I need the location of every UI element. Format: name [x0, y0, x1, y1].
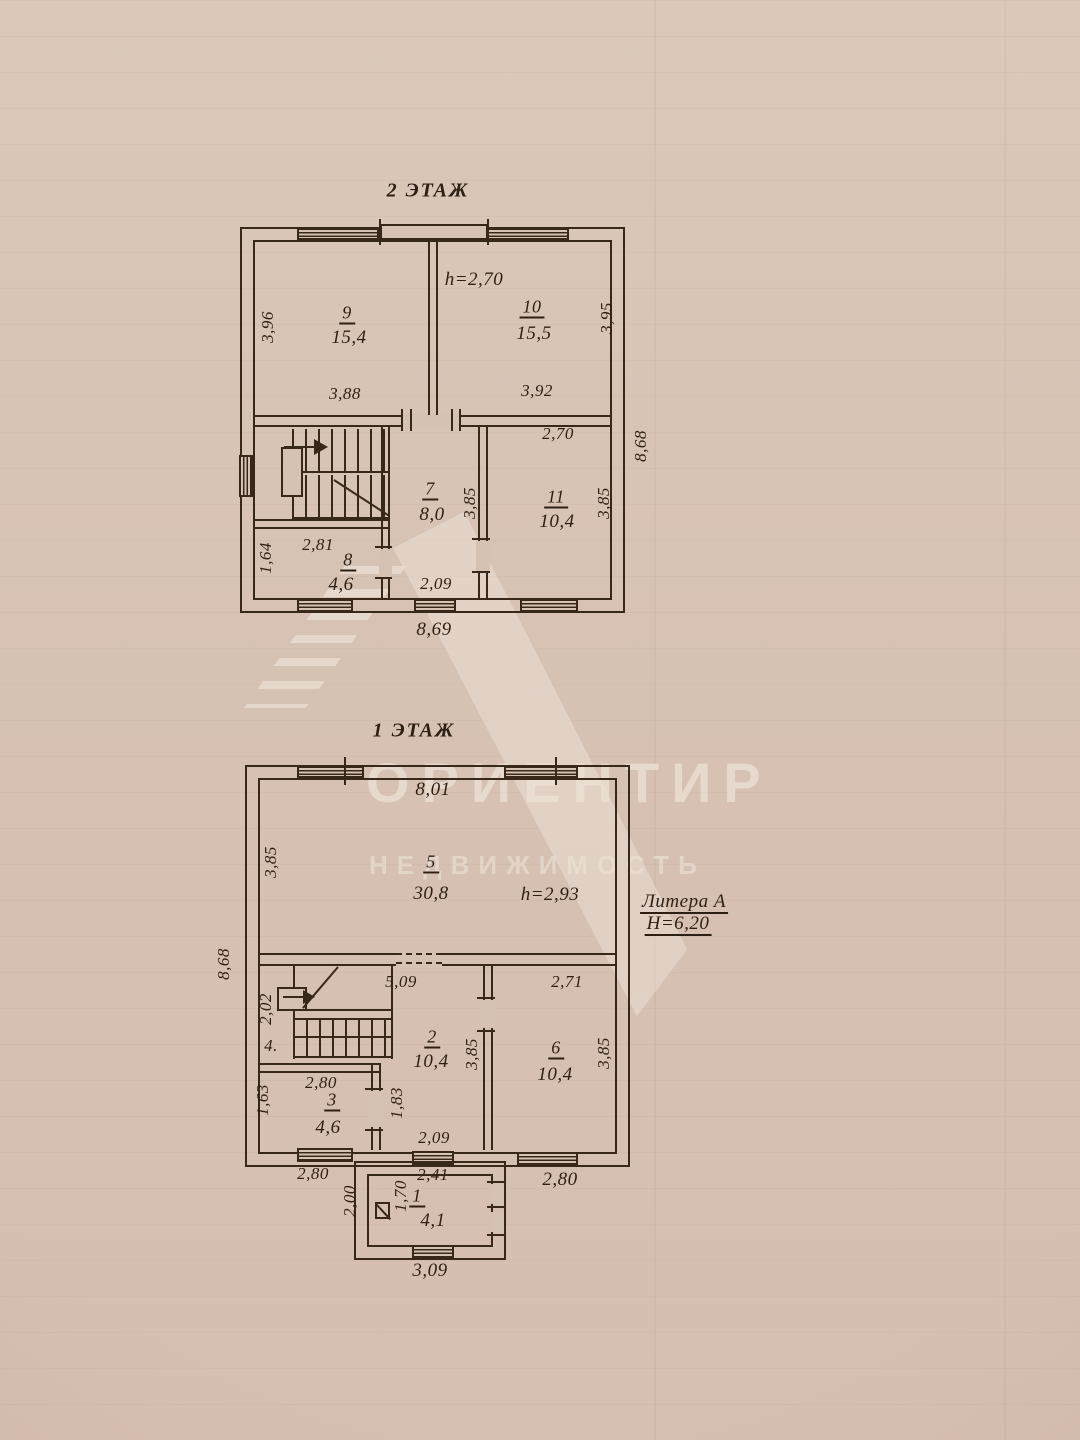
interior-wall — [428, 242, 438, 415]
ceiling-height-label: h=2,70 — [445, 269, 504, 291]
litera-label: Литера А — [640, 891, 728, 913]
door-jamb-tick — [365, 1129, 383, 1131]
dimension-label: 2,80 — [542, 1169, 577, 1191]
interior-wall — [483, 964, 493, 1150]
door-jamb-tick — [459, 409, 461, 431]
room-number: 1 — [409, 1186, 425, 1207]
room-number: 6 — [548, 1038, 564, 1059]
dimension-label: 3,96 — [258, 311, 278, 343]
room9-number: 9 — [339, 303, 355, 325]
dimension-label: 1,64 — [256, 542, 276, 574]
door-jamb-tick — [477, 997, 495, 999]
room6-number: 6 — [548, 1038, 564, 1060]
room6-area: 10,4 — [537, 1064, 572, 1086]
room10-number: 10 — [520, 297, 545, 319]
dashed-opening-line — [396, 962, 442, 964]
window — [297, 766, 364, 778]
window — [239, 455, 253, 497]
room2-number: 2 — [424, 1027, 440, 1049]
dimension-label: 8,68 — [214, 948, 234, 980]
window — [487, 228, 569, 240]
floor2-title: 2 ЭТАЖ — [387, 180, 470, 203]
room-number: 7 — [422, 479, 438, 500]
door-jamb-tick — [375, 577, 392, 579]
dimension-tick — [555, 757, 557, 785]
stair-treads — [292, 429, 388, 473]
door-jamb-tick — [487, 1181, 506, 1183]
dimension-label: 3,95 — [597, 302, 617, 334]
door-opening — [369, 1091, 383, 1127]
room1-number: 1 — [409, 1186, 425, 1208]
dimension-tick — [379, 219, 381, 245]
dimension-label: 2,09 — [418, 1128, 450, 1148]
room3-area: 4,6 — [315, 1117, 340, 1139]
dimension-tick — [487, 219, 489, 245]
room8-number: 8 — [340, 550, 356, 572]
stair-direction-arrow — [284, 446, 316, 448]
window — [297, 1148, 353, 1162]
dimension-label: 2,41 — [417, 1165, 449, 1185]
dimension-label: 5,09 — [385, 972, 417, 992]
window — [414, 599, 456, 613]
litera-text: Литера А — [640, 891, 728, 914]
room3-number: 3 — [324, 1090, 340, 1112]
dimension-label: 3,85 — [462, 1038, 482, 1070]
ceiling-height-label: h=2,93 — [521, 884, 580, 906]
dimension-label: 3,85 — [594, 487, 614, 519]
dimension-label: 1,83 — [387, 1087, 407, 1119]
dimension-label: 8,68 — [631, 430, 651, 462]
window — [297, 599, 353, 613]
door-opening — [491, 1212, 504, 1232]
room4-number: 4. — [264, 1036, 278, 1056]
door-jamb-tick — [401, 409, 403, 431]
window — [520, 599, 578, 613]
room8-area: 4,6 — [328, 574, 353, 596]
room-number: 2 — [424, 1027, 440, 1048]
room-number: 3 — [324, 1090, 340, 1111]
dashed-opening-line — [396, 953, 442, 955]
room11-number: 11 — [544, 487, 568, 509]
window — [517, 1152, 578, 1166]
door-opening — [481, 1000, 495, 1028]
dimension-label: 2,71 — [551, 972, 583, 992]
door-jamb-tick — [451, 409, 453, 431]
dimension-label: 3,09 — [412, 1260, 447, 1282]
room7-number: 7 — [422, 479, 438, 501]
door-jamb-tick — [477, 1030, 495, 1032]
interior-wall — [258, 1063, 380, 1073]
stair-direction-arrow — [283, 996, 305, 998]
room-number: 5 — [423, 852, 439, 873]
door-jamb-tick — [410, 409, 412, 431]
window — [297, 228, 379, 240]
room1-area: 4,1 — [420, 1210, 445, 1232]
stair-rail — [281, 447, 303, 497]
dimension-label: 1,70 — [391, 1180, 411, 1212]
room-number: 11 — [544, 487, 568, 508]
door-jamb-tick — [375, 546, 392, 548]
door-opening — [491, 1184, 504, 1204]
door-jamb-tick — [487, 1206, 506, 1208]
dimension-label: 8,69 — [416, 619, 451, 641]
dimension-label: 2,02 — [256, 993, 276, 1025]
dimension-tick — [344, 757, 346, 785]
dimension-label: 2,81 — [302, 535, 334, 555]
room2-area: 10,4 — [413, 1051, 448, 1073]
dimension-label: 3,85 — [460, 487, 480, 519]
door-opening — [379, 549, 392, 577]
room5-number: 5 — [423, 852, 439, 874]
dimension-label: 3,85 — [261, 846, 281, 878]
dimension-label: 2,00 — [340, 1185, 360, 1217]
interior-wall — [253, 519, 389, 529]
door-jamb-tick — [472, 538, 490, 540]
room9-area: 15,4 — [331, 327, 366, 349]
window — [504, 766, 578, 778]
door-opening — [476, 541, 490, 571]
stair-treads — [292, 475, 388, 519]
door-jamb-tick — [365, 1088, 383, 1090]
room7-area: 8,0 — [419, 504, 444, 526]
dimension-label: 2,70 — [542, 424, 574, 444]
door-jamb-tick — [472, 571, 490, 573]
stair-treads — [293, 1018, 393, 1058]
room11-area: 10,4 — [539, 511, 574, 533]
scanned-floorplan-page: ОРИЕНТИР НЕДВИЖИМОСТЬ 2 ЭТАЖ — [0, 0, 1080, 1440]
dimension-label: 8,01 — [415, 779, 450, 801]
room10-area: 15,5 — [516, 323, 551, 345]
stair-mid-line — [293, 1036, 393, 1038]
room-number: 9 — [339, 303, 355, 324]
door-jamb-tick — [487, 1234, 506, 1236]
stair-landing-line — [293, 1009, 393, 1011]
building-height-label: Н=6,20 — [645, 913, 712, 935]
room5-area: 30,8 — [413, 883, 448, 905]
dimension-label: 2,09 — [420, 574, 452, 594]
building-height-text: Н=6,20 — [645, 913, 712, 936]
dimension-label: 1,63 — [253, 1084, 273, 1116]
floor1-title: 1 ЭТАЖ — [373, 720, 456, 743]
room-number: 8 — [340, 550, 356, 571]
dimension-label: 3,88 — [329, 384, 361, 404]
dimension-label: 2,80 — [297, 1164, 329, 1184]
dimension-label: 3,92 — [521, 381, 553, 401]
stair-arrow-head-icon — [314, 439, 328, 455]
window — [412, 1245, 454, 1259]
room-number: 10 — [520, 297, 545, 318]
wall-pier — [380, 224, 488, 240]
dimension-label: 3,85 — [594, 1037, 614, 1069]
